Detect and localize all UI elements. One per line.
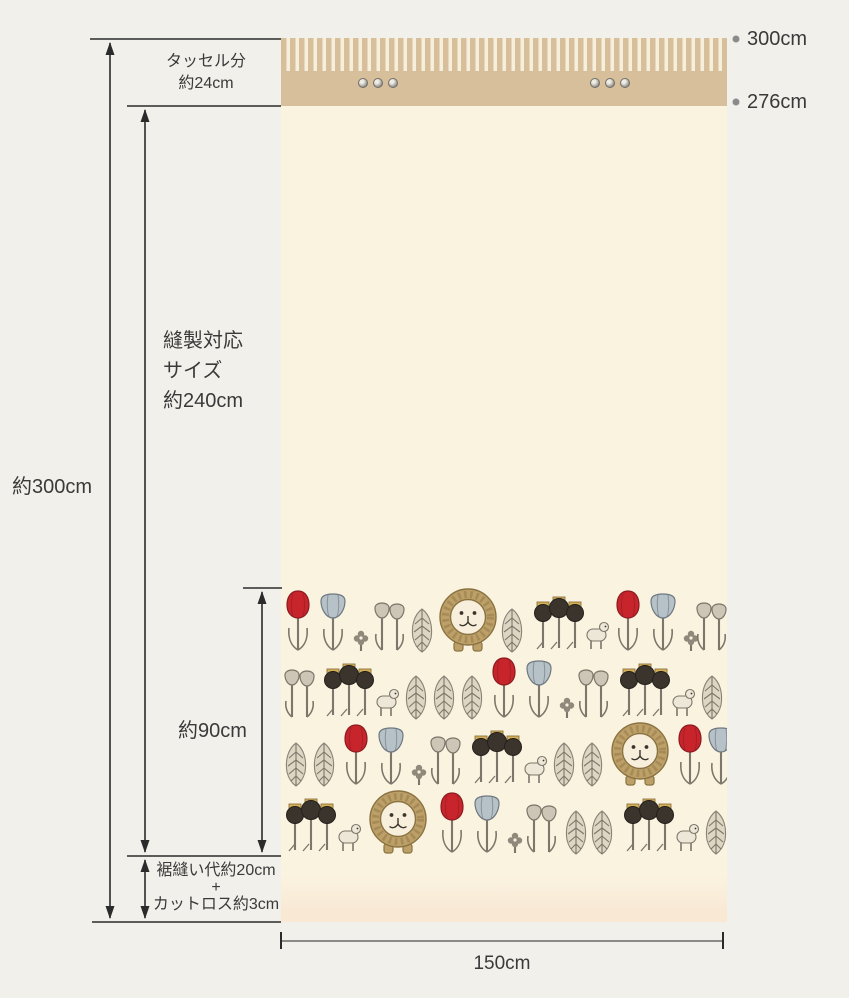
motif-lion bbox=[370, 791, 426, 853]
motif-leaf bbox=[412, 609, 431, 652]
fabric-width-label: 150cm bbox=[452, 953, 552, 975]
motif-clover bbox=[560, 698, 574, 718]
motif-tulip-blue bbox=[475, 796, 499, 852]
motif-tulip-blue bbox=[379, 728, 403, 784]
motif-leaf bbox=[592, 811, 611, 854]
hem-allowance-line1: 裾縫い代約20cm bbox=[146, 862, 286, 879]
motif-tulip-blue bbox=[527, 661, 551, 717]
motif-tulip-gray bbox=[285, 670, 314, 717]
motif-tulip-blue bbox=[651, 594, 675, 650]
sewing-size-line2: サイズ bbox=[163, 356, 243, 386]
pattern-height-label: 約90cm bbox=[178, 714, 247, 743]
motif-dark-cluster bbox=[535, 597, 609, 649]
motif-clover bbox=[684, 631, 698, 651]
motif-leaf bbox=[554, 743, 573, 786]
total-height-label: 約300cm bbox=[12, 470, 92, 499]
sewing-size-label: 縫製対応 サイズ 約240cm bbox=[163, 326, 243, 416]
motif-tulip-blue bbox=[709, 728, 727, 784]
motif-leaf bbox=[702, 676, 721, 719]
fabric-top-fringe bbox=[281, 38, 727, 71]
motif-leaf bbox=[314, 743, 333, 786]
tassel-label: タッセル分 約24cm bbox=[150, 51, 262, 95]
curtain-hook bbox=[620, 78, 630, 88]
tassel-label-line1: タッセル分 bbox=[150, 51, 262, 73]
motif-dark-cluster bbox=[625, 799, 699, 851]
motif-tulip-red bbox=[679, 725, 701, 784]
motif-tulip-gray bbox=[579, 670, 608, 717]
motif-tulip-red bbox=[441, 793, 463, 852]
fabric-header-band bbox=[281, 71, 727, 106]
right-label-300cm: 300cm bbox=[747, 28, 807, 51]
motif-lion bbox=[440, 589, 496, 651]
pattern-svg bbox=[281, 588, 727, 856]
motif-leaf bbox=[462, 676, 481, 719]
motif-dark-cluster bbox=[325, 664, 399, 716]
fabric-pattern-area bbox=[281, 588, 727, 856]
motif-leaf bbox=[406, 676, 425, 719]
tassel-label-line2: 約24cm bbox=[150, 73, 262, 95]
sewing-size-line1: 縫製対応 bbox=[163, 326, 243, 356]
curtain-hook bbox=[605, 78, 615, 88]
motif-tulip-gray bbox=[431, 737, 460, 784]
curtain-hook bbox=[358, 78, 368, 88]
curtain-hook bbox=[373, 78, 383, 88]
motif-leaf bbox=[706, 811, 725, 854]
fabric-body bbox=[281, 106, 727, 588]
motif-dark-cluster bbox=[473, 731, 547, 783]
motif-lion bbox=[612, 723, 668, 785]
motif-dark-cluster bbox=[621, 664, 695, 716]
bullet-276 bbox=[733, 99, 740, 106]
hem-allowance-label: 裾縫い代約20cm + カットロス約3cm bbox=[146, 862, 286, 913]
motif-tulip-red bbox=[345, 725, 367, 784]
motif-tulip-red bbox=[617, 591, 639, 650]
motif-tulip-blue bbox=[321, 594, 345, 650]
sewing-size-line3: 約240cm bbox=[163, 386, 243, 416]
motif-tulip-red bbox=[493, 658, 515, 717]
motif-tulip-gray bbox=[527, 805, 556, 852]
motif-clover bbox=[508, 833, 522, 853]
motif-tulip-red bbox=[287, 591, 309, 650]
hem-allowance-line2: カットロス約3cm bbox=[146, 896, 286, 913]
curtain-size-diagram: タッセル分 約24cm 縫製対応 サイズ 約240cm 約300cm 約90cm… bbox=[0, 0, 849, 998]
hem-allowance-plus: + bbox=[146, 879, 286, 896]
curtain-hook bbox=[388, 78, 398, 88]
motif-tulip-gray bbox=[375, 603, 404, 650]
motif-leaf bbox=[434, 676, 453, 719]
motif-leaf bbox=[566, 811, 585, 854]
motif-tulip-gray bbox=[697, 603, 726, 650]
motif-clover bbox=[354, 631, 368, 651]
motif-dark-cluster bbox=[287, 799, 361, 851]
motif-leaf bbox=[582, 743, 601, 786]
motif-leaf bbox=[502, 609, 521, 652]
right-label-276cm: 276cm bbox=[747, 91, 807, 114]
motif-leaf bbox=[286, 743, 305, 786]
fabric-hem-area bbox=[281, 856, 727, 922]
bullet-300 bbox=[733, 36, 740, 43]
curtain-hook bbox=[590, 78, 600, 88]
fabric-panel bbox=[281, 38, 727, 922]
motif-clover bbox=[412, 765, 426, 785]
